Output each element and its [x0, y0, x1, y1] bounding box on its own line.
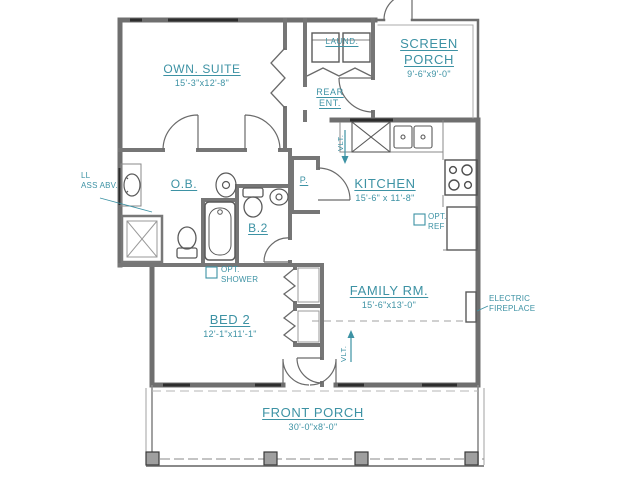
own-suite-label: OWN. SUITE — [150, 62, 254, 77]
opt-ref-checkbox — [414, 214, 425, 225]
kitchen-label: KITCHEN — [330, 176, 440, 192]
rear-entry-label: REAR ENT. — [306, 87, 354, 109]
floor-plan: OWN. SUITE 15'-3"x12'-8" SCREEN PORCH 9'… — [0, 0, 640, 480]
owners-bath-label: O.B. — [162, 177, 206, 192]
sink-owners-bath-right — [216, 173, 236, 197]
opt-shower-label: OPT. SHOWER — [221, 265, 267, 285]
toilet-bath2 — [243, 188, 263, 217]
bathtub — [205, 202, 235, 260]
front-porch-label: FRONT PORCH — [243, 405, 383, 421]
bed2-dims: 12'-1"x11'-1" — [172, 329, 288, 340]
bath2-label: B.2 — [238, 221, 278, 236]
screen-porch-label: SCREEN PORCH — [383, 36, 475, 68]
own-suite-dims: 15'-3"x12'-8" — [150, 78, 254, 89]
vault-arrow-up — [348, 330, 355, 362]
dishwasher — [352, 122, 390, 152]
glass-above-label-line2: ASS ABV. — [81, 181, 131, 191]
screen-porch-dims: 9'-6"x9'-0" — [383, 69, 475, 80]
sink-bath2 — [270, 189, 288, 205]
range — [445, 160, 477, 195]
opt-shower-checkbox — [206, 267, 217, 278]
family-room-label: FAMILY RM. — [328, 283, 450, 299]
fireplace — [466, 292, 476, 322]
kitchen-dims: 15'-6" x 11'-8" — [330, 193, 440, 204]
kitchen-sink — [394, 126, 432, 148]
toilet-owners-bath — [177, 227, 197, 258]
electric-fireplace-label: ELECTRIC FIREPLACE — [489, 294, 545, 314]
front-porch-dims: 30'-0"x8'-0" — [243, 422, 383, 433]
vault-label-family: VLT. — [339, 346, 348, 362]
laundry-label: LAUND. — [316, 37, 368, 47]
vault-label-kitchen: VLT. — [336, 135, 345, 151]
family-room-dims: 15'-6"x13'-0" — [328, 300, 450, 311]
glass-above-label-line1: LL — [81, 171, 131, 181]
bed2-label: BED 2 — [172, 312, 288, 328]
opt-ref-label: OPT. REF — [428, 212, 454, 232]
pantry-label: P. — [294, 175, 314, 186]
shower — [122, 216, 162, 262]
